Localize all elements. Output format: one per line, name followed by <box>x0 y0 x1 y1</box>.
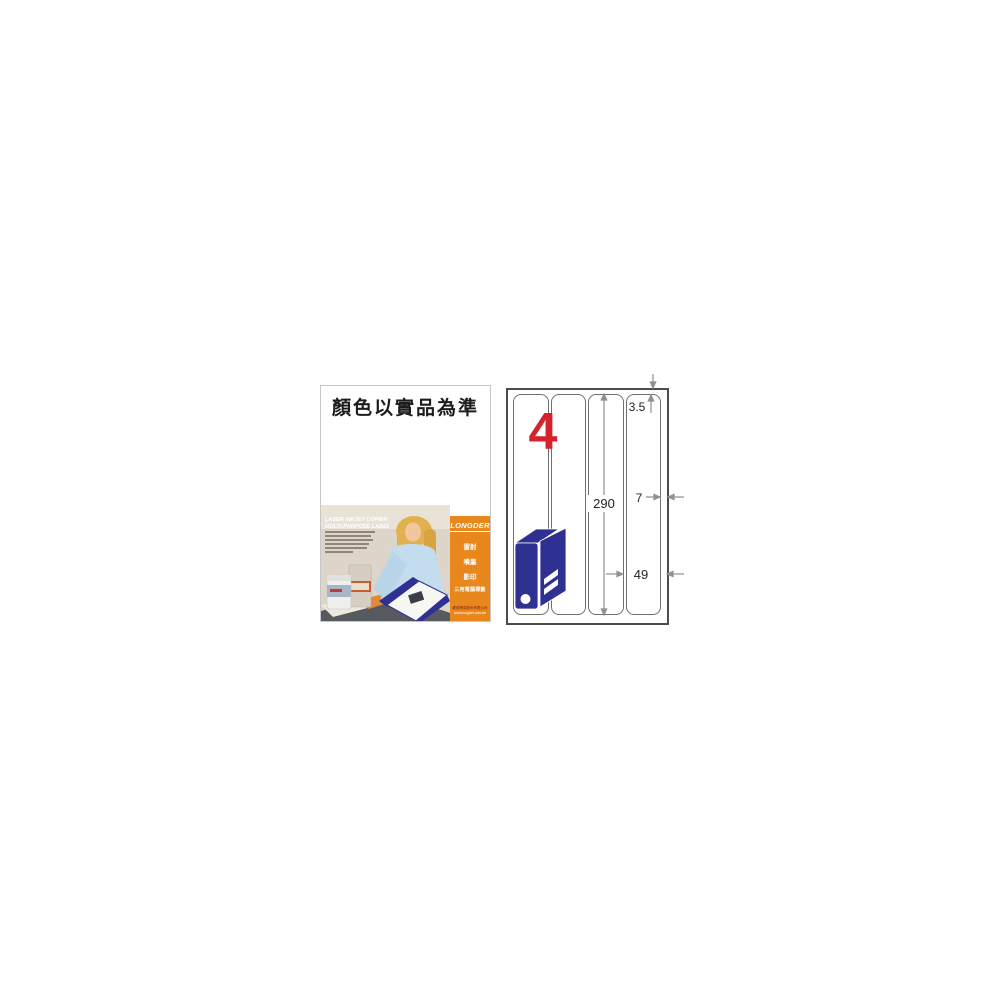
face <box>405 523 421 542</box>
photo-slogan-line1: LASER INKJET COPIER <box>325 517 387 523</box>
top-margin-arrow <box>650 374 655 388</box>
product-image: 顏色以實品為準 <box>0 0 1000 1000</box>
product-type-item: 雷射 <box>464 541 477 551</box>
label-column-3 <box>588 394 624 615</box>
photo-illustration: LASER INKJET COPIER MULTI-PURPOSE LABEL <box>321 505 450 621</box>
photo-slogan-line2: MULTI-PURPOSE LABEL <box>325 524 391 530</box>
longder-logo: LONGDER <box>450 521 490 532</box>
brand-band: LONGDER 雷射 噴墨 影印 三用電腦標籤 龍德貿易股份有限公司 www.l… <box>450 516 490 621</box>
product-photo: LASER INKJET COPIER MULTI-PURPOSE LABEL <box>321 505 450 621</box>
color-disclaimer-headline: 顏色以實品為準 <box>321 393 490 420</box>
package-panel: 顏色以實品為準 <box>320 385 491 622</box>
brand-footer: 龍德貿易股份有限公司 www.longder.com.tw <box>450 606 490 617</box>
product-type-item: 影印 <box>464 571 477 581</box>
company-website: www.longder.com.tw <box>450 611 490 616</box>
product-type-item: 三用電腦標籤 <box>454 586 485 593</box>
label-count: 4 <box>528 406 558 458</box>
product-type-list: 雷射 噴墨 影印 三用電腦標籤 <box>450 541 490 593</box>
label-column-4 <box>626 394 662 615</box>
company-name: 龍德貿易股份有限公司 <box>450 606 490 611</box>
product-type-item: 噴墨 <box>464 556 477 566</box>
binder-icon <box>513 527 567 611</box>
